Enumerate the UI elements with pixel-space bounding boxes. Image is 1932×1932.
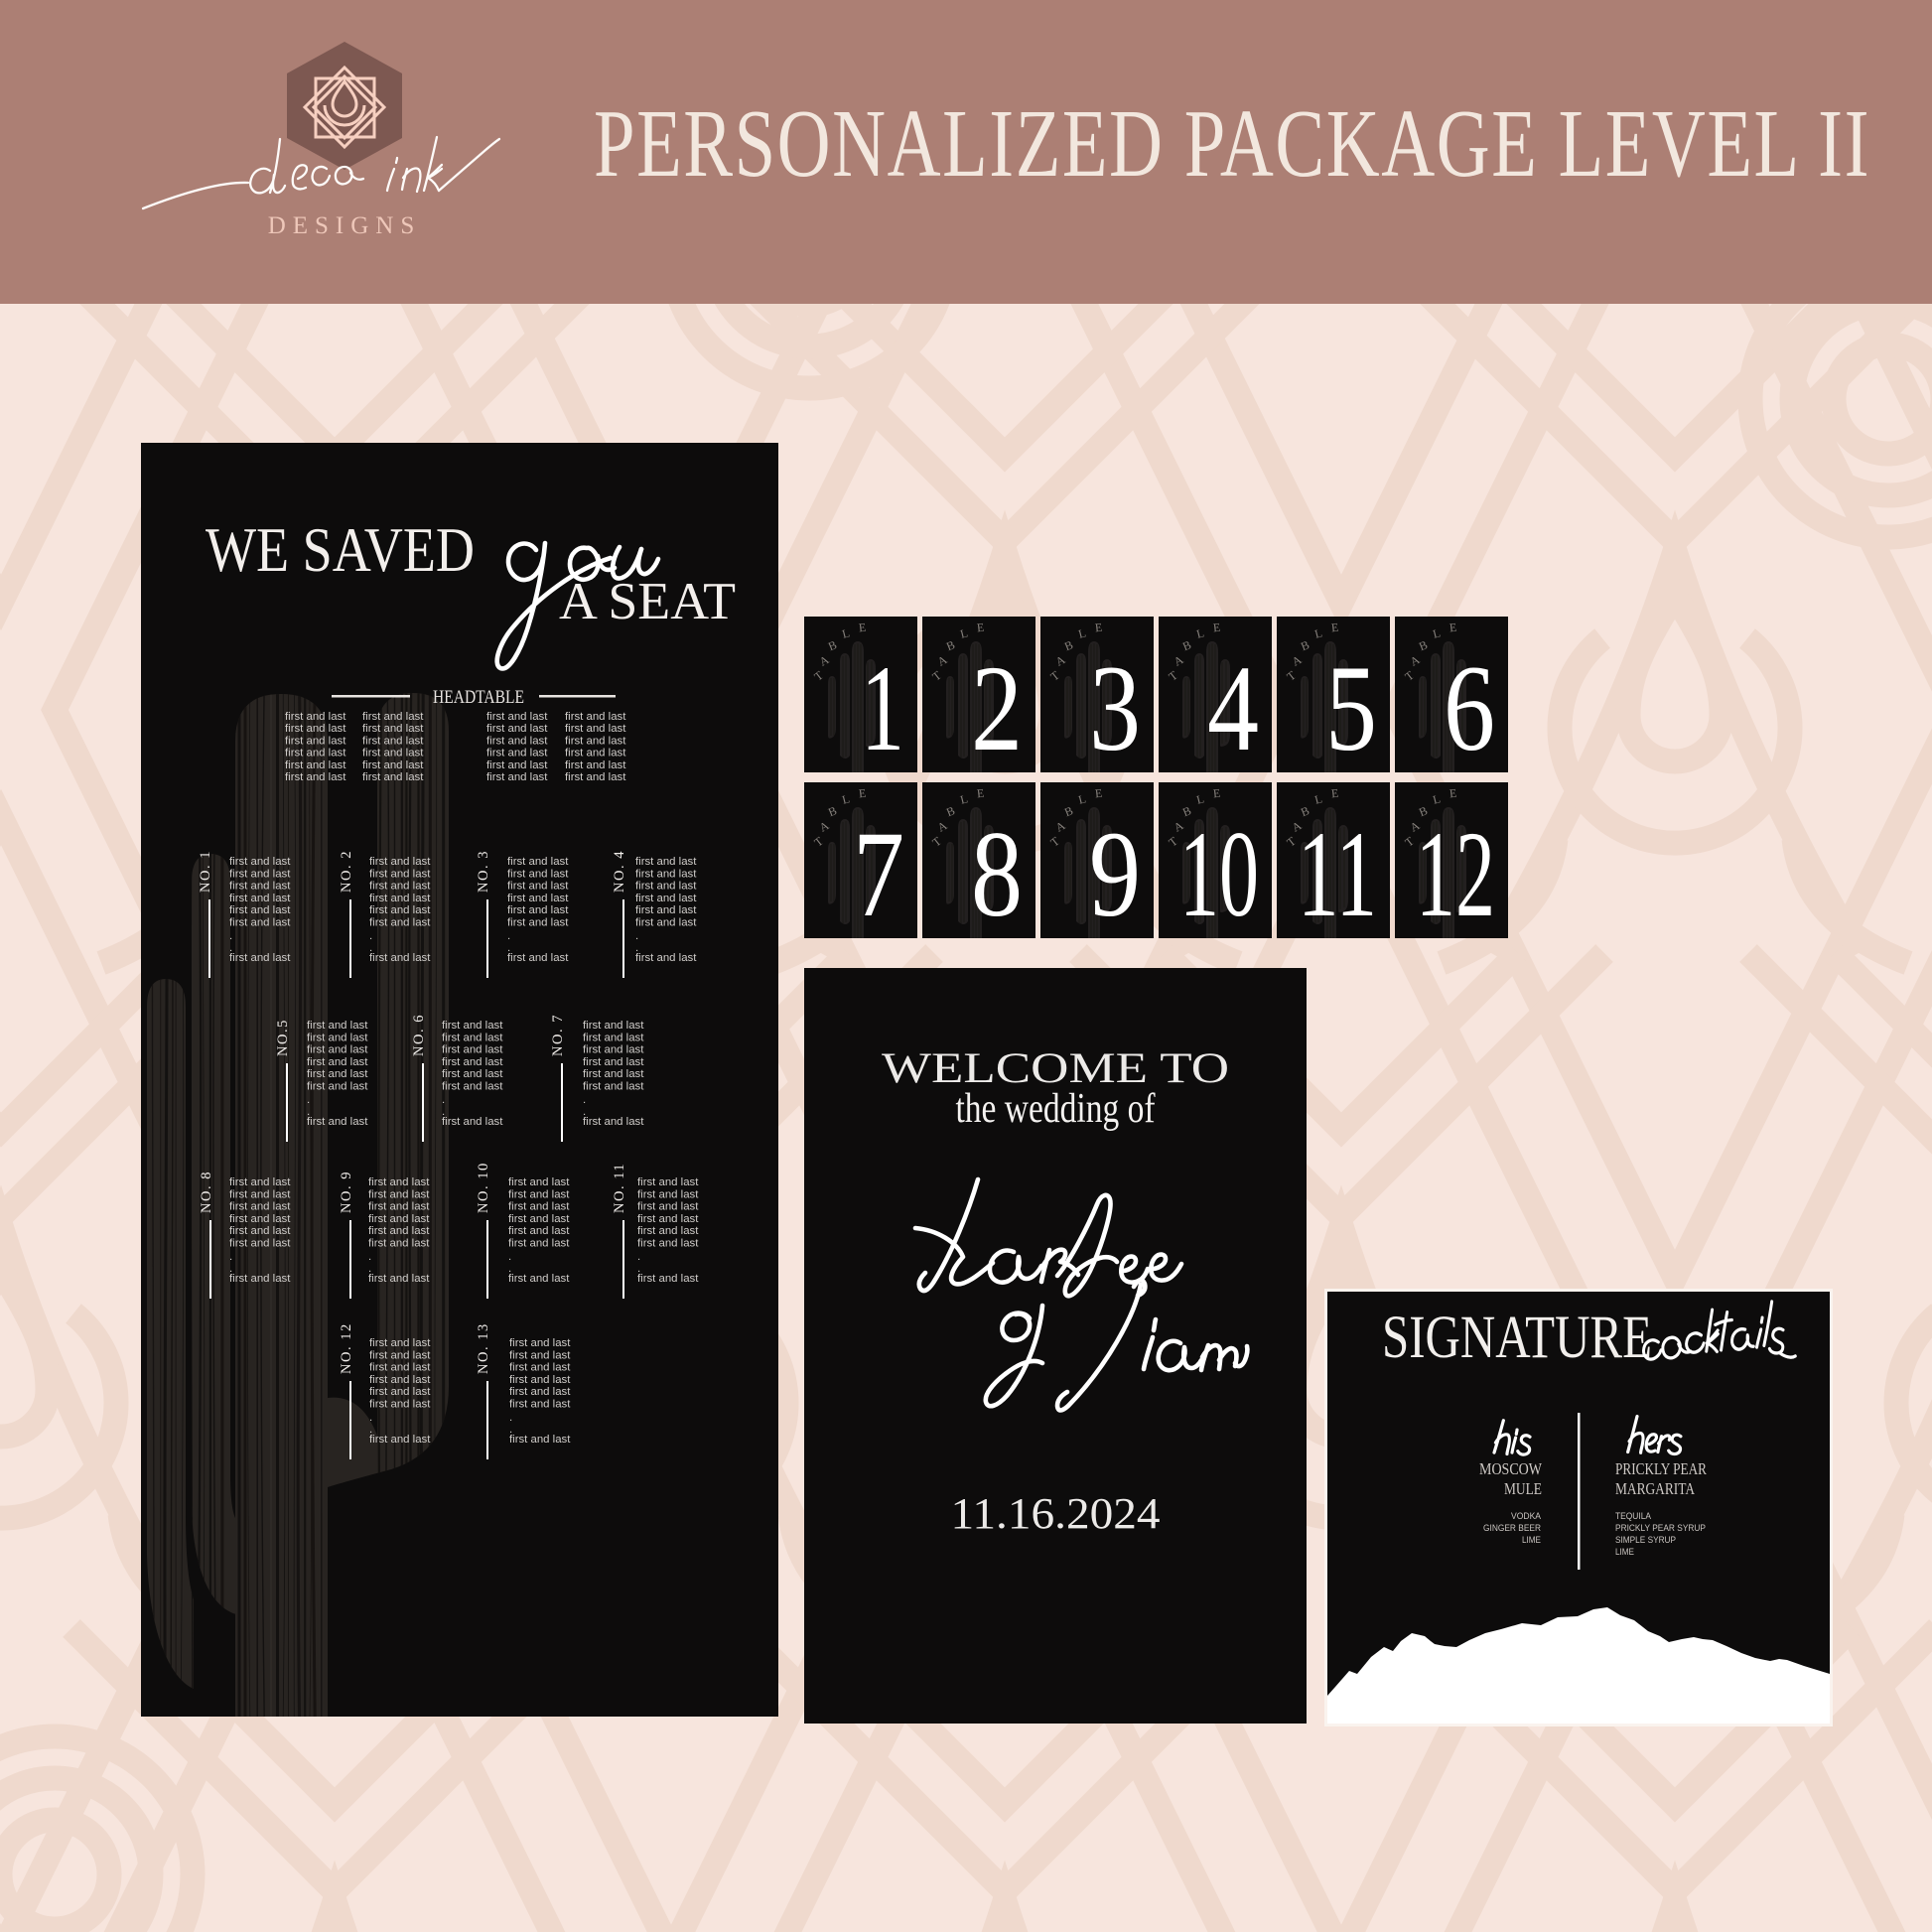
svg-text:first and last: first and last (507, 856, 569, 868)
svg-text:first and last: first and last (229, 1225, 291, 1237)
svg-text:first and last: first and last (509, 1374, 571, 1386)
svg-text:L: L (1313, 625, 1324, 640)
svg-text:B: B (1299, 637, 1311, 653)
svg-text:first and last: first and last (508, 1201, 570, 1213)
svg-text:first and last: first and last (229, 893, 291, 904)
svg-text:.: . (229, 930, 232, 942)
svg-text:first and last: first and last (583, 1116, 644, 1128)
svg-text:first and last: first and last (486, 735, 548, 747)
svg-text:first and last: first and last (362, 711, 424, 723)
svg-text:E: E (1330, 621, 1339, 635)
svg-text:A: A (935, 652, 950, 669)
svg-text:A: A (1053, 818, 1068, 835)
svg-text:.: . (229, 1251, 232, 1263)
svg-text:PRICKLY PEAR SYRUP: PRICKLY PEAR SYRUP (1615, 1523, 1706, 1534)
svg-text:9: 9 (1089, 806, 1141, 938)
svg-text:L: L (1077, 625, 1088, 640)
svg-text:WE SAVED: WE SAVED (206, 515, 475, 585)
svg-text:11.16.2024: 11.16.2024 (951, 1489, 1161, 1538)
svg-text:11: 11 (1298, 806, 1377, 938)
svg-text:A: A (1290, 652, 1305, 669)
svg-text:first and last: first and last (285, 748, 346, 759)
svg-text:NO. 2: NO. 2 (339, 850, 354, 893)
svg-text:7: 7 (853, 806, 904, 938)
svg-text:first and last: first and last (229, 904, 291, 916)
svg-text:.: . (635, 930, 638, 942)
svg-text:NO.5: NO.5 (275, 1019, 291, 1056)
svg-text:NO. 6: NO. 6 (411, 1014, 427, 1056)
svg-text:.: . (507, 930, 510, 942)
svg-text:first and last: first and last (507, 881, 569, 893)
svg-text:B: B (944, 803, 957, 819)
svg-text:first and last: first and last (369, 1434, 431, 1446)
svg-text:first and last: first and last (509, 1386, 571, 1398)
svg-text:first and last: first and last (368, 1273, 430, 1285)
svg-text:10: 10 (1179, 806, 1259, 938)
svg-text:first and last: first and last (508, 1238, 570, 1250)
svg-text:first and last: first and last (285, 735, 346, 747)
svg-text:1: 1 (861, 640, 904, 772)
svg-text:NO. 3: NO. 3 (476, 850, 491, 893)
svg-text:first and last: first and last (307, 1068, 368, 1080)
svg-text:first and last: first and last (583, 1081, 644, 1093)
svg-text:first and last: first and last (442, 1020, 503, 1032)
svg-text:first and last: first and last (637, 1213, 699, 1225)
svg-text:first and last: first and last (229, 917, 291, 929)
svg-text:first and last: first and last (229, 1213, 291, 1225)
svg-text:first and last: first and last (229, 868, 291, 880)
svg-text:first and last: first and last (565, 723, 626, 735)
svg-text:.: . (583, 1094, 586, 1106)
svg-text:first and last: first and last (442, 1068, 503, 1080)
svg-text:NO. 4: NO. 4 (612, 850, 627, 893)
svg-text:first and last: first and last (369, 1374, 431, 1386)
svg-text:E: E (1212, 786, 1221, 801)
svg-text:first and last: first and last (229, 1176, 291, 1188)
svg-text:T: T (929, 668, 944, 684)
svg-text:A: A (1408, 652, 1423, 669)
svg-text:first and last: first and last (369, 904, 431, 916)
svg-text:L: L (1195, 625, 1206, 640)
svg-text:A: A (1172, 652, 1186, 669)
svg-text:T: T (1402, 668, 1417, 684)
svg-text:DESIGNS: DESIGNS (268, 212, 422, 239)
svg-text:first and last: first and last (583, 1044, 644, 1056)
svg-text:first and last: first and last (565, 748, 626, 759)
svg-text:GINGER BEER: GINGER BEER (1483, 1523, 1541, 1534)
svg-text:NO. 9: NO. 9 (339, 1171, 354, 1213)
svg-text:.: . (637, 1251, 640, 1263)
svg-text:first and last: first and last (229, 1238, 291, 1250)
svg-text:.: . (307, 1094, 310, 1106)
svg-text:NO. 1: NO. 1 (198, 850, 213, 893)
svg-text:first and last: first and last (362, 759, 424, 771)
svg-text:E: E (1330, 786, 1339, 801)
svg-text:first and last: first and last (362, 748, 424, 759)
svg-text:first and last: first and last (637, 1238, 699, 1250)
svg-text:first and last: first and last (229, 952, 291, 964)
svg-text:first and last: first and last (362, 771, 424, 783)
svg-text:first and last: first and last (369, 952, 431, 964)
svg-text:A: A (935, 818, 950, 835)
svg-text:first and last: first and last (508, 1213, 570, 1225)
svg-text:first and last: first and last (637, 1188, 699, 1200)
svg-text:first and last: first and last (369, 1337, 431, 1349)
svg-text:first and last: first and last (486, 748, 548, 759)
svg-text:first and last: first and last (637, 1201, 699, 1213)
svg-text:first and last: first and last (307, 1081, 368, 1093)
svg-text:first and last: first and last (229, 1273, 291, 1285)
svg-text:first and last: first and last (509, 1362, 571, 1374)
svg-text:NO. 10: NO. 10 (476, 1162, 491, 1213)
svg-text:first and last: first and last (307, 1032, 368, 1043)
svg-text:first and last: first and last (565, 735, 626, 747)
svg-text:first and last: first and last (583, 1068, 644, 1080)
svg-text:first and last: first and last (637, 1176, 699, 1188)
svg-text:first and last: first and last (508, 1273, 570, 1285)
svg-text:first and last: first and last (307, 1116, 368, 1128)
svg-text:MARGARITA: MARGARITA (1615, 1479, 1696, 1498)
svg-text:first and last: first and last (369, 893, 431, 904)
svg-text:first and last: first and last (307, 1056, 368, 1068)
svg-text:B: B (1180, 637, 1193, 653)
svg-text:first and last: first and last (583, 1032, 644, 1043)
svg-text:first and last: first and last (565, 759, 626, 771)
svg-text:PRICKLY PEAR: PRICKLY PEAR (1615, 1459, 1708, 1478)
svg-text:B: B (826, 637, 839, 653)
svg-text:E: E (1449, 786, 1457, 801)
svg-text:first and last: first and last (369, 868, 431, 880)
svg-text:first and last: first and last (509, 1399, 571, 1411)
svg-text:A: A (1053, 652, 1068, 669)
svg-text:12: 12 (1416, 806, 1495, 938)
svg-text:first and last: first and last (486, 711, 548, 723)
svg-text:first and last: first and last (509, 1349, 571, 1361)
svg-text:T: T (811, 668, 826, 684)
svg-text:first and last: first and last (442, 1116, 503, 1128)
svg-text:NO. 13: NO. 13 (476, 1322, 491, 1374)
svg-text:.: . (442, 1094, 445, 1106)
svg-text:first and last: first and last (285, 771, 346, 783)
svg-text:B: B (1062, 803, 1075, 819)
svg-text:.: . (508, 1251, 511, 1263)
svg-text:first and last: first and last (229, 1188, 291, 1200)
svg-text:T: T (1284, 668, 1299, 684)
svg-text:first and last: first and last (369, 881, 431, 893)
svg-text:the wedding of: the wedding of (956, 1086, 1156, 1132)
svg-text:E: E (1094, 786, 1103, 801)
svg-text:MOSCOW: MOSCOW (1479, 1459, 1543, 1478)
svg-text:L: L (1313, 791, 1324, 806)
svg-text:5: 5 (1325, 640, 1377, 772)
svg-text:first and last: first and last (442, 1044, 503, 1056)
svg-text:first and last: first and last (442, 1081, 503, 1093)
svg-text:first and last: first and last (369, 1386, 431, 1398)
svg-text:HEADTABLE: HEADTABLE (433, 687, 524, 708)
svg-text:first and last: first and last (635, 868, 697, 880)
svg-text:B: B (826, 803, 839, 819)
svg-text:first and last: first and last (442, 1056, 503, 1068)
svg-text:first and last: first and last (635, 856, 697, 868)
svg-text:MULE: MULE (1504, 1479, 1542, 1498)
svg-text:first and last: first and last (507, 893, 569, 904)
svg-text:first and last: first and last (369, 1362, 431, 1374)
svg-text:first and last: first and last (565, 711, 626, 723)
svg-text:B: B (1417, 637, 1430, 653)
svg-text:.: . (369, 930, 372, 942)
svg-text:T: T (1047, 834, 1062, 850)
svg-text:L: L (841, 791, 852, 806)
svg-text:first and last: first and last (583, 1056, 644, 1068)
svg-text:B: B (944, 637, 957, 653)
svg-text:first and last: first and last (637, 1225, 699, 1237)
svg-text:L: L (959, 625, 970, 640)
svg-text:first and last: first and last (565, 771, 626, 783)
svg-text:E: E (976, 621, 985, 635)
svg-text:first and last: first and last (507, 868, 569, 880)
svg-text:first and last: first and last (368, 1225, 430, 1237)
svg-text:8: 8 (971, 806, 1023, 938)
svg-text:first and last: first and last (369, 1399, 431, 1411)
svg-text:2: 2 (971, 640, 1023, 772)
svg-text:E: E (858, 786, 867, 801)
svg-text:first and last: first and last (229, 1201, 291, 1213)
svg-text:6: 6 (1444, 640, 1495, 772)
svg-text:first and last: first and last (486, 759, 548, 771)
svg-text:first and last: first and last (368, 1201, 430, 1213)
svg-text:first and last: first and last (368, 1213, 430, 1225)
svg-text:LIME: LIME (1522, 1535, 1541, 1546)
svg-text:first and last: first and last (285, 711, 346, 723)
svg-text:NO. 7: NO. 7 (550, 1014, 566, 1056)
svg-text:first and last: first and last (637, 1273, 699, 1285)
svg-text:first and last: first and last (369, 917, 431, 929)
svg-text:.: . (369, 1412, 372, 1424)
svg-text:first and last: first and last (486, 723, 548, 735)
svg-text:first and last: first and last (369, 856, 431, 868)
svg-text:first and last: first and last (285, 759, 346, 771)
svg-text:L: L (1195, 791, 1206, 806)
svg-text:NO. 11: NO. 11 (612, 1163, 627, 1213)
svg-text:first and last: first and last (635, 952, 697, 964)
svg-text:A: A (817, 652, 832, 669)
svg-text:first and last: first and last (442, 1032, 503, 1043)
svg-text:E: E (858, 621, 867, 635)
svg-text:L: L (1432, 791, 1443, 806)
svg-text:first and last: first and last (635, 904, 697, 916)
svg-text:TEQUILA: TEQUILA (1615, 1511, 1652, 1522)
svg-text:first and last: first and last (362, 735, 424, 747)
svg-text:T: T (1166, 668, 1180, 684)
svg-text:first and last: first and last (507, 904, 569, 916)
svg-text:WELCOME TO: WELCOME TO (882, 1045, 1229, 1092)
svg-text:first and last: first and last (229, 881, 291, 893)
svg-text:.: . (509, 1412, 512, 1424)
svg-text:first and last: first and last (635, 893, 697, 904)
svg-text:first and last: first and last (635, 881, 697, 893)
svg-text:L: L (841, 625, 852, 640)
svg-text:4: 4 (1207, 640, 1259, 772)
svg-text:first and last: first and last (368, 1188, 430, 1200)
svg-text:first and last: first and last (583, 1020, 644, 1032)
svg-text:3: 3 (1089, 640, 1141, 772)
svg-text:E: E (976, 786, 985, 801)
svg-text:A: A (817, 818, 832, 835)
svg-text:first and last: first and last (508, 1176, 570, 1188)
svg-text:first and last: first and last (509, 1434, 571, 1446)
svg-text:E: E (1212, 621, 1221, 635)
svg-text:L: L (1077, 791, 1088, 806)
svg-text:first and last: first and last (509, 1337, 571, 1349)
svg-text:LIME: LIME (1615, 1547, 1634, 1558)
svg-text:first and last: first and last (307, 1044, 368, 1056)
svg-text:first and last: first and last (362, 723, 424, 735)
svg-text:NO. 12: NO. 12 (339, 1322, 354, 1374)
svg-text:first and last: first and last (285, 723, 346, 735)
svg-text:SIMPLE SYRUP: SIMPLE SYRUP (1615, 1535, 1676, 1546)
svg-text:E: E (1449, 621, 1457, 635)
svg-text:first and last: first and last (369, 1349, 431, 1361)
svg-text:first and last: first and last (635, 917, 697, 929)
svg-text:NO. 8: NO. 8 (199, 1171, 214, 1213)
svg-text:first and last: first and last (368, 1238, 430, 1250)
svg-text:first and last: first and last (508, 1188, 570, 1200)
svg-text:E: E (1094, 621, 1103, 635)
svg-text:first and last: first and last (507, 952, 569, 964)
svg-text:first and last: first and last (229, 856, 291, 868)
svg-text:T: T (1047, 668, 1062, 684)
svg-text:.: . (368, 1251, 371, 1263)
svg-text:T: T (929, 834, 944, 850)
svg-text:first and last: first and last (486, 771, 548, 783)
svg-text:VODKA: VODKA (1511, 1511, 1542, 1522)
svg-text:first and last: first and last (307, 1020, 368, 1032)
svg-text:first and last: first and last (368, 1176, 430, 1188)
svg-text:first and last: first and last (507, 917, 569, 929)
svg-text:first and last: first and last (508, 1225, 570, 1237)
svg-text:B: B (1062, 637, 1075, 653)
svg-text:L: L (959, 791, 970, 806)
svg-text:L: L (1432, 625, 1443, 640)
svg-text:T: T (811, 834, 826, 850)
svg-text:SIGNATURE: SIGNATURE (1382, 1305, 1652, 1371)
